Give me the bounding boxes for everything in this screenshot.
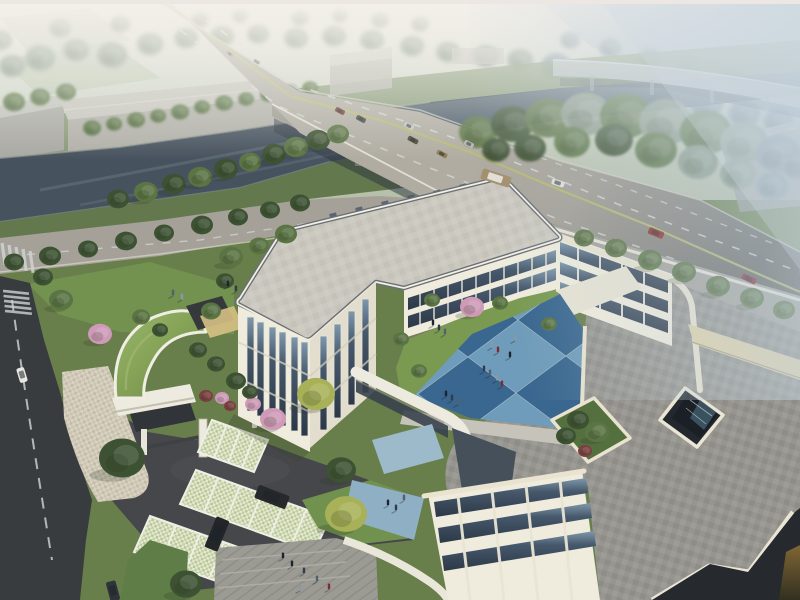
tree-core <box>52 298 64 308</box>
tree-core <box>263 208 273 216</box>
tree-core <box>105 454 128 472</box>
tree-core <box>588 430 600 440</box>
person-figure <box>387 500 389 506</box>
tree-core <box>110 197 121 206</box>
tree-core <box>242 160 253 169</box>
tree-core <box>231 215 241 223</box>
person-figure <box>445 391 447 397</box>
person-figure <box>438 325 440 331</box>
tree-core <box>219 279 228 286</box>
scene-canvas <box>0 0 800 600</box>
tree-core <box>192 348 201 355</box>
tree-core <box>278 232 289 241</box>
person-figure <box>291 561 293 567</box>
tree-core <box>91 332 103 342</box>
tree-core <box>154 329 162 335</box>
tree-core <box>570 418 581 427</box>
person-figure <box>444 329 446 335</box>
tree-core <box>244 391 252 397</box>
tree-core <box>157 231 167 239</box>
tree-core <box>204 309 214 317</box>
tree-core <box>217 397 224 403</box>
tree-core <box>194 223 205 232</box>
person-figure <box>282 553 284 559</box>
person-figure <box>299 585 301 591</box>
tree-core <box>331 510 352 527</box>
person-figure <box>403 495 405 501</box>
tree-core <box>293 201 303 209</box>
tree-core <box>226 405 232 410</box>
tree-core <box>222 255 234 265</box>
person-figure <box>181 294 183 300</box>
person-figure <box>227 281 229 287</box>
person-figure <box>328 584 330 590</box>
tree-core <box>174 581 190 594</box>
tree-core <box>247 403 255 409</box>
architectural-rendering <box>0 0 800 600</box>
person-figure <box>457 399 459 405</box>
person-figure <box>432 320 434 326</box>
tree-core <box>395 338 403 344</box>
tree-core <box>81 247 91 255</box>
tree-core <box>580 450 587 456</box>
tree-core <box>7 260 17 268</box>
tree-core <box>302 391 321 406</box>
person-figure <box>316 576 318 582</box>
tree-core <box>42 254 53 263</box>
tree-core <box>426 299 434 305</box>
tree-core <box>135 315 144 322</box>
tree-core <box>559 434 569 442</box>
tree-core <box>217 167 229 177</box>
person-figure <box>303 568 305 574</box>
tree-core <box>210 362 219 369</box>
tree-core <box>36 275 46 283</box>
tree-core <box>137 190 149 200</box>
person-figure <box>172 290 174 296</box>
person-figure <box>451 395 453 401</box>
tree-core <box>330 467 345 479</box>
person-figure <box>395 505 397 511</box>
tree-core <box>201 395 208 401</box>
person-figure <box>235 286 237 292</box>
border-top-strip <box>0 0 800 4</box>
tree-core <box>413 370 421 376</box>
tree-core <box>191 175 203 185</box>
tree-core <box>118 239 129 248</box>
tree-core <box>229 379 239 387</box>
tree-core <box>165 182 177 192</box>
tree-core <box>264 417 277 427</box>
tree-core <box>252 244 262 252</box>
